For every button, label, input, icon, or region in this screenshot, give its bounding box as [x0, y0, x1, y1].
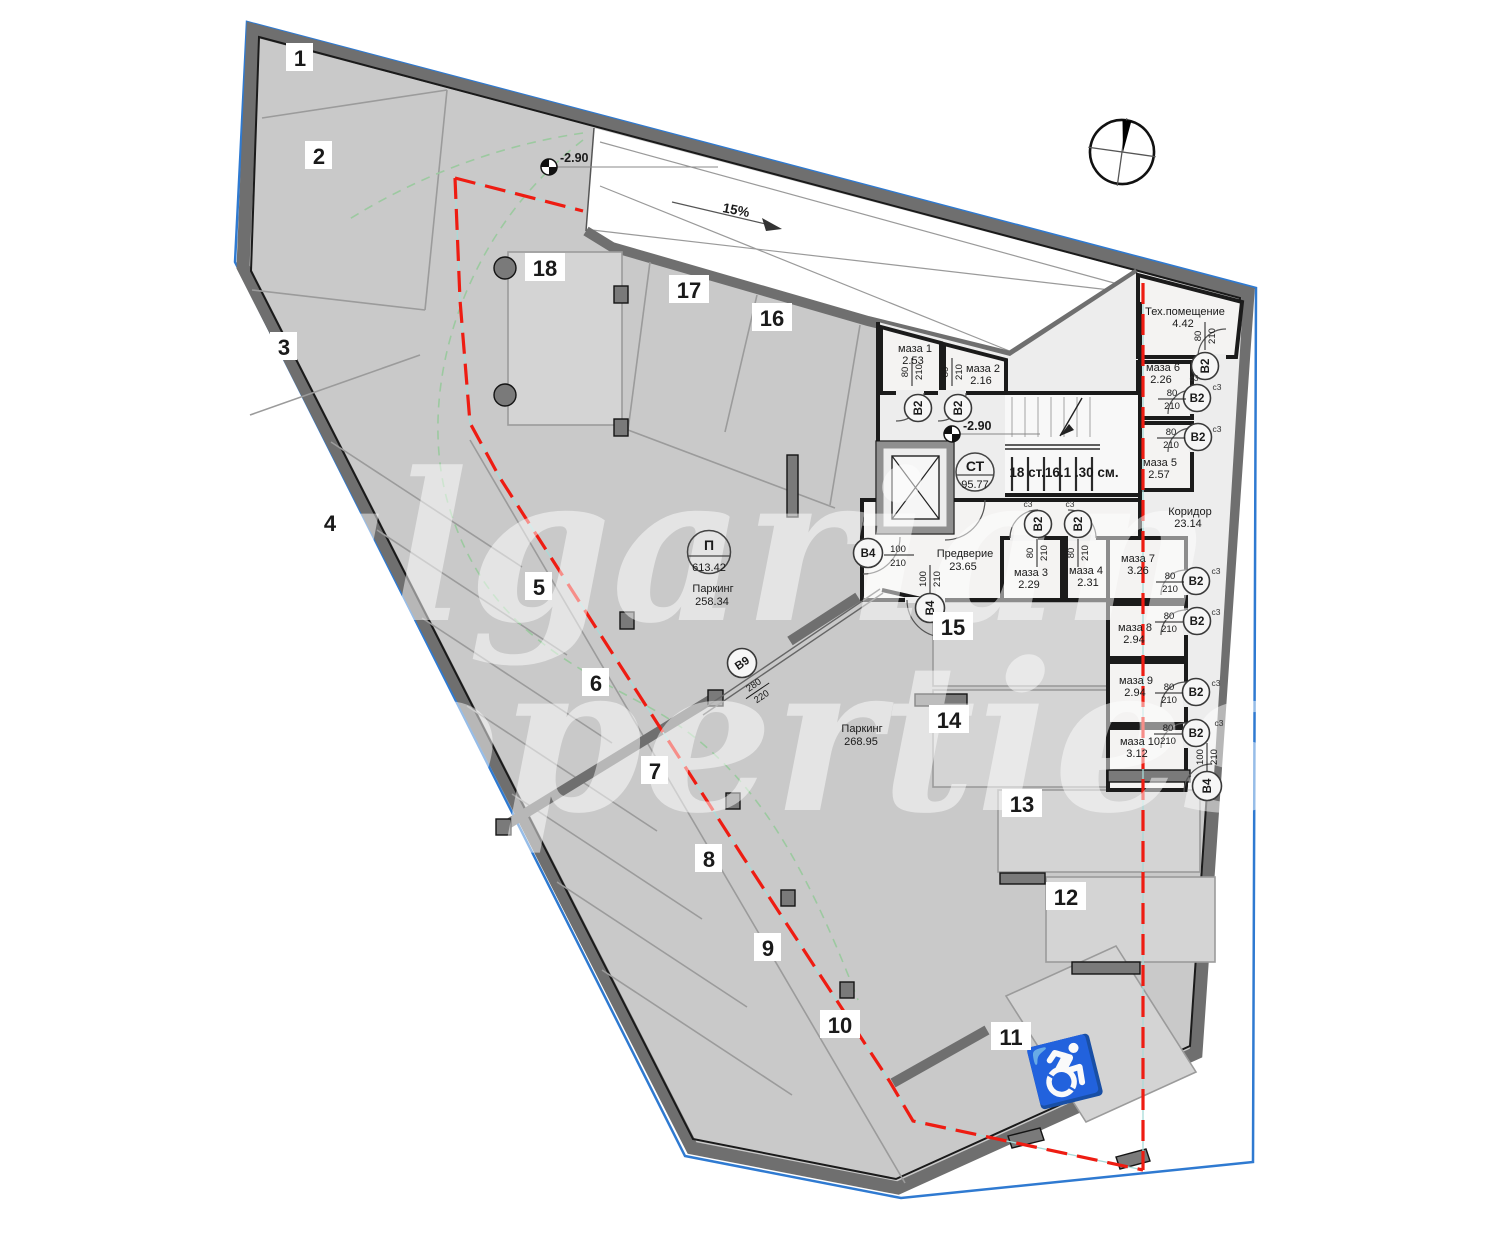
svg-text:13: 13: [1010, 792, 1034, 817]
svg-text:Properties: Properties: [95, 619, 1299, 859]
svg-text:4: 4: [324, 511, 337, 536]
stall-number: 14: [929, 705, 969, 733]
svg-text:с3: с3: [1215, 718, 1224, 728]
svg-text:210: 210: [954, 364, 965, 380]
svg-text:80: 80: [900, 367, 911, 378]
svg-text:80: 80: [1163, 723, 1174, 734]
svg-text:с3: с3: [1212, 607, 1221, 617]
svg-text:с3: с3: [1212, 678, 1221, 688]
svg-text:маза 2: маза 2: [966, 363, 1000, 375]
floor-plan: Bulgarian Properties -2.90 -2.90 15% П 6…: [0, 0, 1500, 1260]
svg-text:2.16: 2.16: [970, 375, 991, 387]
stall-number: 15: [933, 612, 973, 640]
svg-text:В2: В2: [953, 401, 965, 416]
stall-number: 7: [641, 756, 668, 784]
stall-number: 18: [525, 253, 565, 281]
svg-text:2.94: 2.94: [1124, 687, 1145, 699]
svg-text:210: 210: [932, 571, 943, 587]
stall-number: 17: [669, 275, 709, 303]
svg-text:маза 8: маза 8: [1118, 622, 1152, 634]
svg-text:210: 210: [1207, 328, 1218, 344]
svg-text:5: 5: [533, 575, 545, 600]
svg-text:80: 80: [1167, 388, 1178, 399]
svg-text:80: 80: [1066, 548, 1077, 559]
svg-text:П: П: [704, 537, 714, 553]
svg-text:210: 210: [890, 558, 906, 569]
svg-text:Тех.помещение: Тех.помещение: [1145, 306, 1225, 318]
stall-number: 2: [305, 141, 332, 169]
basement-plan-svg: Bulgarian Properties -2.90 -2.90 15% П 6…: [0, 0, 1500, 1260]
svg-text:маза 7: маза 7: [1121, 553, 1155, 565]
stall-number: 3: [270, 332, 297, 360]
svg-text:В4: В4: [1202, 778, 1214, 793]
watermark: Bulgarian Properties: [63, 429, 1300, 859]
svg-text:маза 3: маза 3: [1014, 567, 1048, 579]
svg-text:613.42: 613.42: [692, 562, 726, 574]
svg-text:12: 12: [1054, 885, 1078, 910]
svg-text:210: 210: [1162, 584, 1178, 595]
svg-text:с3: с3: [1212, 566, 1221, 576]
svg-text:100: 100: [1195, 749, 1206, 765]
svg-text:2.29: 2.29: [1018, 579, 1039, 591]
svg-text:80: 80: [940, 367, 951, 378]
svg-text:6: 6: [590, 671, 602, 696]
svg-text:маза 6: маза 6: [1146, 362, 1180, 374]
svg-text:В4: В4: [861, 548, 876, 560]
svg-text:210: 210: [1080, 545, 1091, 561]
svg-text:210: 210: [1160, 736, 1176, 747]
svg-text:Предверие: Предверие: [937, 548, 994, 560]
svg-text:маза 5: маза 5: [1143, 457, 1177, 469]
svg-text:17: 17: [677, 278, 701, 303]
svg-text:с3: с3: [1024, 499, 1033, 509]
svg-text:23.14: 23.14: [1174, 518, 1202, 530]
svg-text:18: 18: [533, 256, 557, 281]
svg-text:80: 80: [1164, 682, 1175, 693]
stall-number: 10: [820, 1010, 860, 1038]
stair-note: 18 ст.16.1 .30 см.: [1009, 465, 1118, 480]
svg-text:210: 210: [1161, 624, 1177, 635]
svg-text:80: 80: [1025, 548, 1036, 559]
svg-text:9: 9: [762, 936, 774, 961]
north-arrow-icon: [1084, 114, 1161, 191]
svg-text:210: 210: [1163, 440, 1179, 451]
svg-text:3.26: 3.26: [1127, 565, 1148, 577]
stair-area-symbol: СТ 95.77: [956, 453, 994, 491]
svg-text:258.34: 258.34: [695, 596, 729, 608]
svg-text:маза 9: маза 9: [1119, 675, 1153, 687]
svg-text:210: 210: [1209, 749, 1220, 765]
svg-text:2.26: 2.26: [1150, 374, 1171, 386]
svg-text:2: 2: [313, 144, 325, 169]
stall-number: 8: [695, 844, 722, 872]
stall-number: 4: [316, 508, 343, 536]
svg-text:маза 4: маза 4: [1069, 565, 1103, 577]
column: [840, 982, 854, 998]
svg-text:3: 3: [278, 335, 290, 360]
svg-text:80: 80: [1164, 611, 1175, 622]
svg-text:2.31: 2.31: [1077, 577, 1098, 589]
svg-text:2.94: 2.94: [1123, 634, 1144, 646]
svg-text:СТ: СТ: [966, 458, 985, 474]
stall-number: 11: [991, 1022, 1031, 1050]
svg-text:Коридор: Коридор: [1168, 506, 1211, 518]
svg-text:с3: с3: [1190, 373, 1199, 383]
svg-text:В2: В2: [1189, 728, 1204, 740]
svg-text:16: 16: [760, 306, 784, 331]
stall-number: 9: [754, 933, 781, 961]
svg-text:2.57: 2.57: [1148, 469, 1169, 481]
svg-text:100: 100: [890, 544, 906, 555]
column: [614, 286, 628, 303]
svg-text:с3: с3: [1213, 424, 1222, 434]
stall-number: 5: [525, 572, 552, 600]
svg-text:В2: В2: [1033, 517, 1045, 532]
stall-number: 12: [1046, 882, 1086, 910]
stall-number: 6: [582, 668, 609, 696]
svg-text:80: 80: [1193, 331, 1204, 342]
svg-text:8: 8: [703, 847, 715, 872]
svg-text:-2.90: -2.90: [963, 419, 992, 433]
wall-bar: [1072, 962, 1140, 974]
svg-text:маза 1: маза 1: [898, 343, 932, 355]
svg-text:В2: В2: [1190, 393, 1205, 405]
wall-bar: [1000, 873, 1045, 884]
svg-text:23.65: 23.65: [949, 561, 977, 573]
svg-text:4.42: 4.42: [1172, 318, 1193, 330]
stall-number: 13: [1002, 789, 1042, 817]
svg-text:210: 210: [1039, 545, 1050, 561]
svg-text:268.95: 268.95: [844, 736, 878, 748]
svg-text:14: 14: [937, 708, 962, 733]
svg-text:маза 10: маза 10: [1120, 736, 1160, 748]
svg-text:7: 7: [649, 759, 661, 784]
svg-text:210: 210: [914, 364, 925, 380]
stall-number: 16: [752, 303, 792, 331]
svg-text:Паркинг: Паркинг: [692, 583, 733, 595]
svg-text:3.12: 3.12: [1126, 748, 1147, 760]
svg-text:В2: В2: [913, 401, 925, 416]
stall-number: 1: [286, 43, 313, 71]
svg-text:В2: В2: [1190, 616, 1205, 628]
svg-text:210: 210: [1164, 401, 1180, 412]
svg-text:80: 80: [1165, 571, 1176, 582]
svg-text:210: 210: [1161, 695, 1177, 706]
svg-text:с3: с3: [1213, 382, 1222, 392]
column: [781, 890, 795, 906]
svg-text:11: 11: [999, 1025, 1022, 1050]
svg-text:100: 100: [918, 571, 929, 587]
svg-text:10: 10: [828, 1013, 852, 1038]
svg-text:В2: В2: [1191, 432, 1206, 444]
svg-text:Паркинг: Паркинг: [841, 723, 882, 735]
svg-text:с3: с3: [1066, 499, 1075, 509]
svg-text:1: 1: [294, 46, 306, 71]
round-column: [494, 257, 516, 279]
svg-text:95.77: 95.77: [961, 479, 989, 491]
svg-text:В2: В2: [1189, 687, 1204, 699]
svg-text:В2: В2: [1189, 576, 1204, 588]
svg-text:-2.90: -2.90: [560, 151, 589, 165]
svg-text:В2: В2: [1200, 359, 1212, 374]
round-column: [494, 384, 516, 406]
svg-text:В2: В2: [1073, 517, 1085, 532]
svg-text:15: 15: [941, 615, 965, 640]
svg-text:80: 80: [1166, 427, 1177, 438]
